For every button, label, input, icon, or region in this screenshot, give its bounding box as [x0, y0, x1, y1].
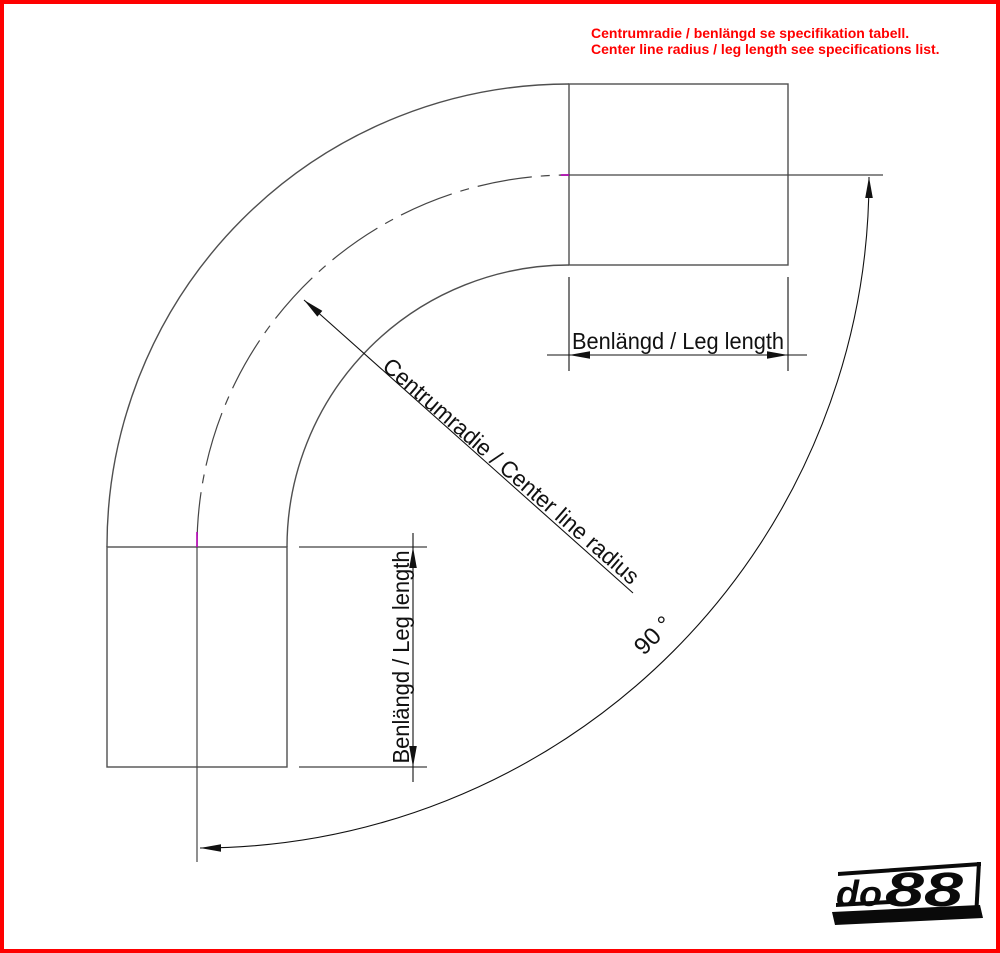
page-border: [0, 0, 1000, 953]
drawing-sheet: Centrumradie / benlängd se specifikation…: [0, 0, 1000, 953]
